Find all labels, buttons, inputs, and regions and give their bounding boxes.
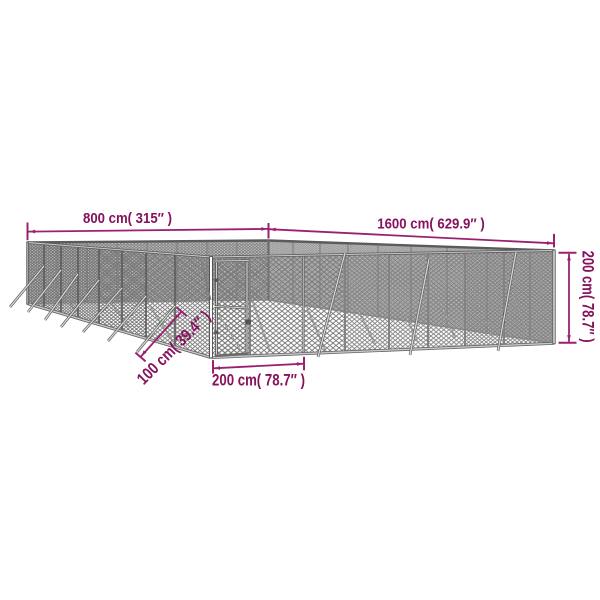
- svg-text:1600 cm( 629.9″ ): 1600 cm( 629.9″ ): [377, 216, 485, 233]
- svg-text:800 cm( 315″ ): 800 cm( 315″ ): [83, 210, 172, 227]
- svg-text:200 cm( 78.7″ ): 200 cm( 78.7″ ): [212, 372, 305, 390]
- svg-text:200 cm( 78.7″ ): 200 cm( 78.7″ ): [579, 251, 597, 343]
